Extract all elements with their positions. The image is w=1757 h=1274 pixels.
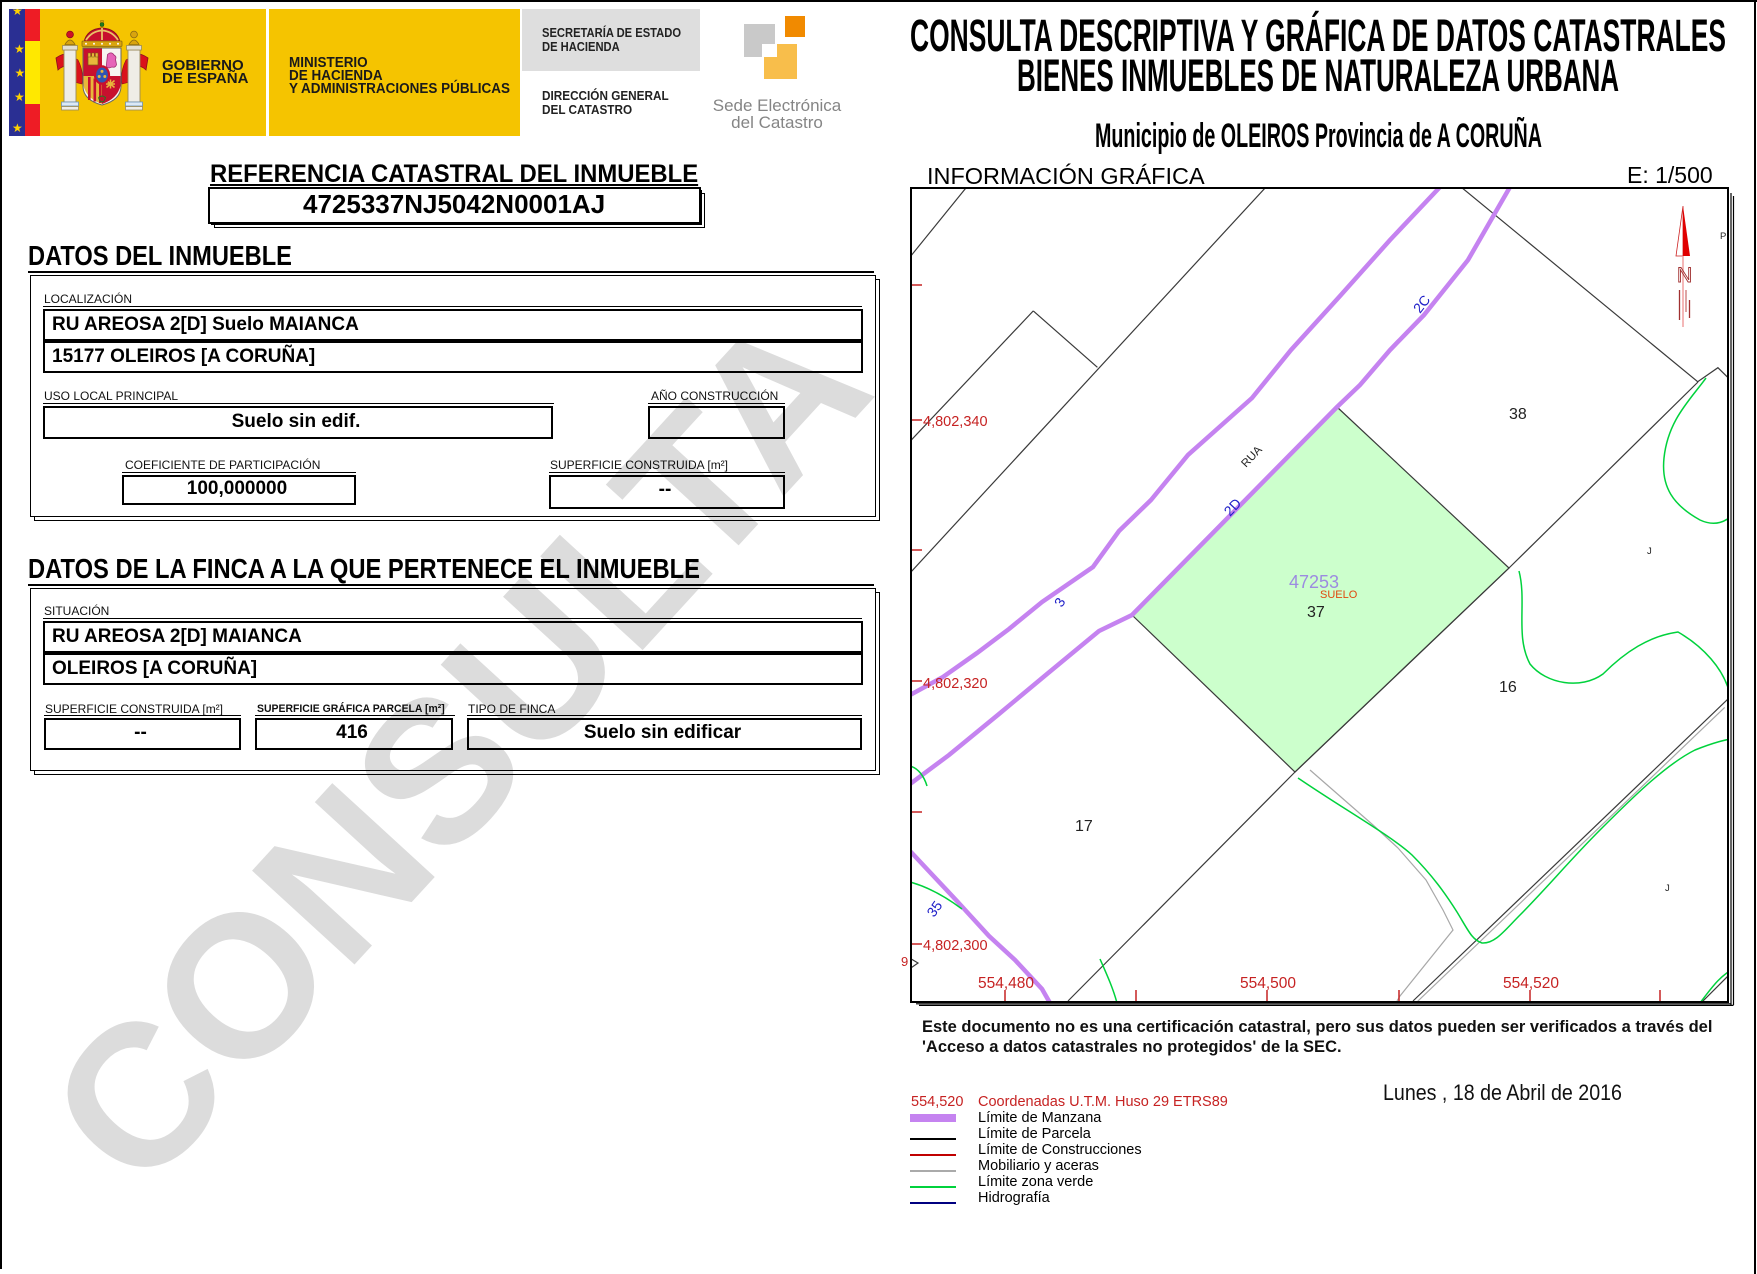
svg-text:4,802,320: 4,802,320	[923, 676, 988, 692]
svg-text:2C: 2C	[1410, 292, 1434, 316]
svg-text:N: N	[1677, 264, 1692, 287]
svg-text:554,520: 554,520	[1503, 975, 1559, 992]
svg-text:J: J	[1647, 546, 1652, 557]
svg-text:RUA: RUA	[1239, 444, 1265, 470]
svg-text:SUELO: SUELO	[1320, 589, 1358, 601]
svg-text:554,480: 554,480	[978, 975, 1034, 992]
svg-text:16: 16	[1499, 679, 1517, 696]
svg-text:P: P	[1720, 231, 1726, 242]
svg-text:3: 3	[1051, 595, 1069, 610]
svg-text:554,500: 554,500	[1240, 975, 1296, 992]
svg-text:37: 37	[1307, 604, 1325, 621]
svg-text:4,802,340: 4,802,340	[923, 414, 988, 430]
svg-text:4,802,300: 4,802,300	[923, 938, 988, 954]
svg-text:J: J	[1665, 883, 1670, 894]
svg-text:17: 17	[1075, 818, 1093, 835]
svg-text:35: 35	[923, 898, 945, 920]
svg-text:38: 38	[1509, 406, 1527, 423]
